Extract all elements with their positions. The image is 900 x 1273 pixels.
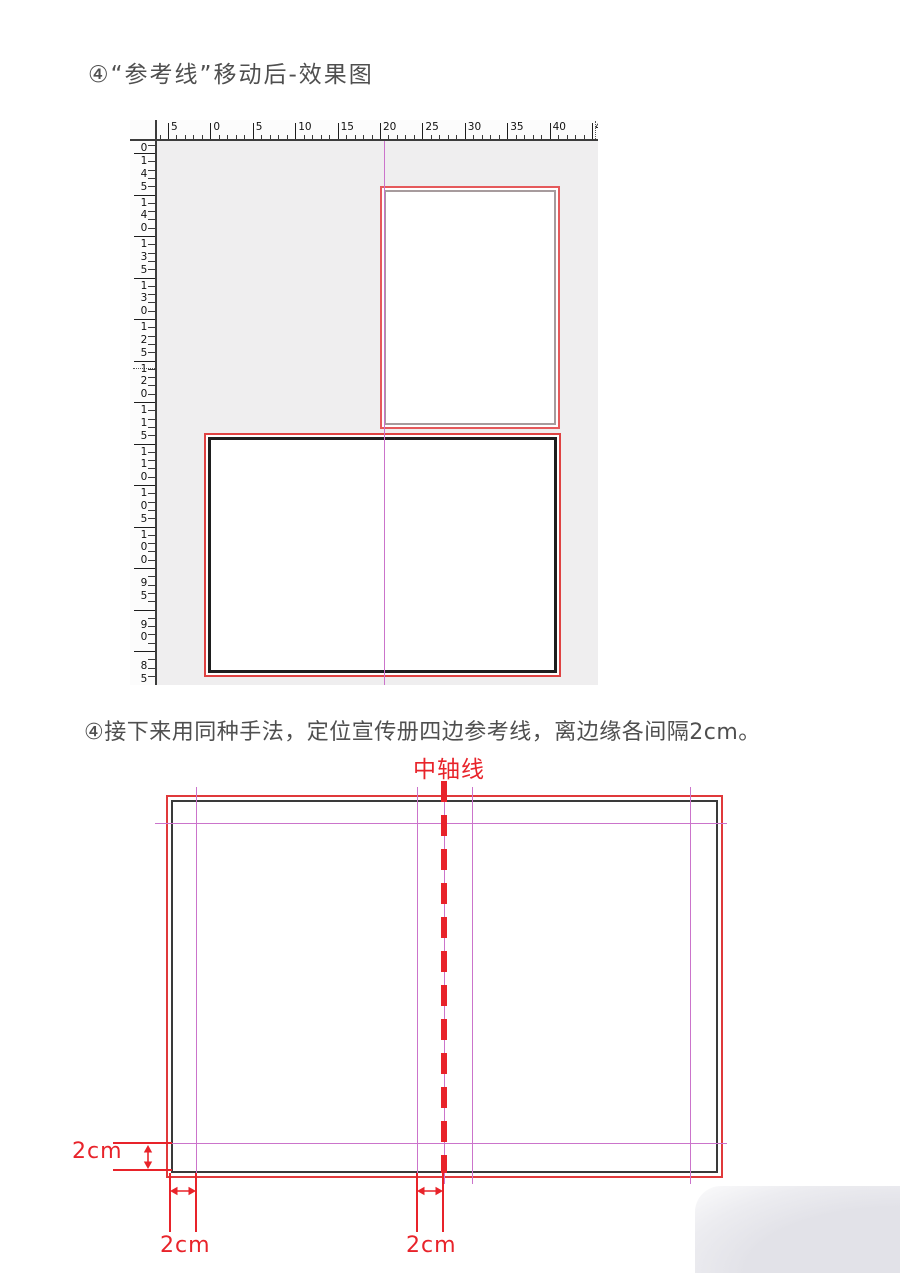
vertical-ruler: 01 4 51 4 01 3 51 3 01 2 51 2 01 1 51 1 … [130,141,157,685]
ruler-tick [533,135,534,141]
ruler-tick [134,568,155,569]
ruler-tick [148,585,155,586]
ruler-tick [148,286,155,287]
ruler-tick [499,135,500,141]
ruler-tick [414,135,415,141]
ruler-tick [148,576,155,577]
ruler-tick [148,294,155,295]
ruler-tick [148,377,155,378]
ruler-tick [329,135,330,141]
ruler-tick [168,123,169,141]
ruler-tick [148,344,155,345]
ruler-tick [148,493,155,494]
ruler-tick [516,135,517,141]
step-title-effect: ④“参考线”移动后-效果图 [88,55,374,89]
ruler-tick [134,485,155,486]
ruler-tick [422,123,423,141]
ruler-tick [148,510,155,511]
ruler-tick [148,394,155,395]
ruler-tick [456,135,457,141]
vertical-guideline [417,787,418,1184]
ruler-number: 0 [213,121,220,133]
ruler-tick [148,593,155,594]
ruler-number: 35 [510,121,523,133]
ruler-tick [148,468,155,469]
ruler-tick [363,135,364,141]
ruler-number: 25 [425,121,438,133]
page-frame-top [380,186,560,429]
ruler-tick [134,278,155,279]
ruler-tick [270,135,271,141]
ruler-tick [388,135,389,141]
ruler-tick [176,135,177,141]
page-frame-top-inner [384,190,556,425]
ruler-tick [134,361,155,362]
ruler-tick [148,410,155,411]
ruler-tick [295,123,296,141]
ruler-tick [148,253,155,254]
double-arrow-horizontal-icon [417,1184,443,1198]
ruler-tick [148,452,155,453]
ruler-tick [244,135,245,141]
ruler-tick [148,502,155,503]
ruler-tick [148,676,155,677]
double-arrow-vertical-icon [141,1145,155,1169]
ruler-tick [134,153,155,154]
ruler-tick [148,419,155,420]
ruler-tick [278,135,279,141]
ruler-tick [148,618,155,619]
dimension-label: 2cm [72,1139,123,1164]
ruler-tick [148,336,155,337]
ruler-tick [134,527,155,528]
ruler-tick [261,135,262,141]
ruler-tick [465,123,466,141]
ruler-number: 5 [256,121,263,133]
ruler-tick [253,123,254,141]
ruler-tick [338,123,339,141]
ruler-tick [524,135,525,141]
ruler-tick [185,135,186,141]
double-arrow-horizontal-icon [170,1184,196,1198]
ruler-tick [346,135,347,141]
ruler-number: 20 [383,121,396,133]
ruler-tick [397,135,398,141]
ruler-tick [575,135,576,141]
ruler-tick [148,551,155,552]
ruler-tick [148,643,155,644]
ruler-tick [584,135,585,141]
ruler-tick [148,178,155,179]
ruler-tick [405,135,406,141]
ruler-tick [287,135,288,141]
ruler-tick [321,135,322,141]
ruler-tick [448,135,449,141]
ruler-tick [148,427,155,428]
dimension-line [442,1173,444,1232]
ruler-tick [148,269,155,270]
ruler-tick [134,651,155,652]
ruler-tick [148,145,155,146]
ruler-tick [236,135,237,141]
ruler-tick [193,135,194,141]
ruler-tick [148,634,155,635]
ruler-tick [134,319,155,320]
step-title-instruction: ④接下来用同种手法，定位宣传册四边参考线，离边缘各间隔2cm。 [84,714,761,746]
ruler-tick [148,369,155,370]
ruler-tick [148,668,155,669]
ruler-tick [550,123,551,141]
dimension-line [169,1173,171,1232]
ruler-tick [148,311,155,312]
page-frame-bottom-inner [208,437,557,673]
ruler-tick [148,385,155,386]
dimension-label: 2cm [406,1233,457,1258]
ruler-number: 9 0 [138,619,150,645]
ruler-tick [134,236,155,237]
ruler-tick [148,203,155,204]
vertical-guideline [384,141,385,685]
ruler-tick [148,352,155,353]
ruler-number: 15 [341,121,354,133]
ruler-tick [202,135,203,141]
ruler-tick [490,135,491,141]
ruler-tick [148,535,155,536]
vertical-guideline [196,787,197,1184]
ruler-tick [148,186,155,187]
ruler-tick [507,123,508,141]
ruler-tick [355,135,356,141]
ruler-tick [148,626,155,627]
ruler-tick [304,135,305,141]
watermark-blob [695,1186,900,1273]
ruler-tick [148,219,155,220]
ruler-tick [148,228,155,229]
ruler-tick [482,135,483,141]
center-axis-dashed-line [441,781,447,1173]
ruler-tick [134,195,155,196]
tutorial-page: ④“参考线”移动后-效果图 5051015202530354045 01 4 5… [0,0,900,1273]
dimension-line [195,1173,197,1232]
ruler-tick [541,135,542,141]
ruler-number: 8 5 [138,660,150,685]
ruler-number: 5 [171,121,178,133]
dimension-label: 2cm [160,1233,211,1258]
ruler-tick [592,123,593,141]
ruler-tick [148,543,155,544]
design-app-screenshot: 5051015202530354045 01 4 51 4 01 3 51 3 … [130,120,598,685]
ruler-tick [558,135,559,141]
ruler-tick [160,135,161,141]
ruler-tick [148,460,155,461]
ruler-tick [148,161,155,162]
ruler-tick [148,601,155,602]
ruler-tick [312,135,313,141]
ruler-number: 30 [468,121,481,133]
ruler-tick [567,135,568,141]
ruler-tick [148,327,155,328]
vertical-guideline [472,787,473,1184]
ruler-tick [431,135,432,141]
ruler-origin-box [130,120,157,141]
dimension-line [416,1173,418,1232]
ruler-tick [372,135,373,141]
ruler-tick [148,560,155,561]
ruler-number: 40 [553,121,566,133]
ruler-tick [134,444,155,445]
ruler-tick [148,659,155,660]
ruler-number: 45 [595,121,598,133]
ruler-tick [227,135,228,141]
dimension-line [113,1169,172,1171]
ruler-tick [439,135,440,141]
ruler-tick [148,261,155,262]
ruler-tick [148,518,155,519]
ruler-tick [473,135,474,141]
page-frame-bottom [204,433,561,677]
vertical-guideline [690,787,691,1184]
horizontal-ruler: 5051015202530354045 [157,120,598,141]
ruler-tick [148,170,155,171]
ruler-number: 9 5 [138,577,150,603]
ruler-tick [134,610,155,611]
ruler-tick [148,244,155,245]
ruler-tick [148,302,155,303]
ruler-tick [134,402,155,403]
ruler-tick [148,211,155,212]
ruler-tick [219,135,220,141]
ruler-tick [148,477,155,478]
ruler-tick [380,123,381,141]
center-axis-label: 中轴线 [403,750,495,784]
ruler-tick [148,435,155,436]
ruler-tick [210,123,211,141]
ruler-number: 10 [298,121,311,133]
